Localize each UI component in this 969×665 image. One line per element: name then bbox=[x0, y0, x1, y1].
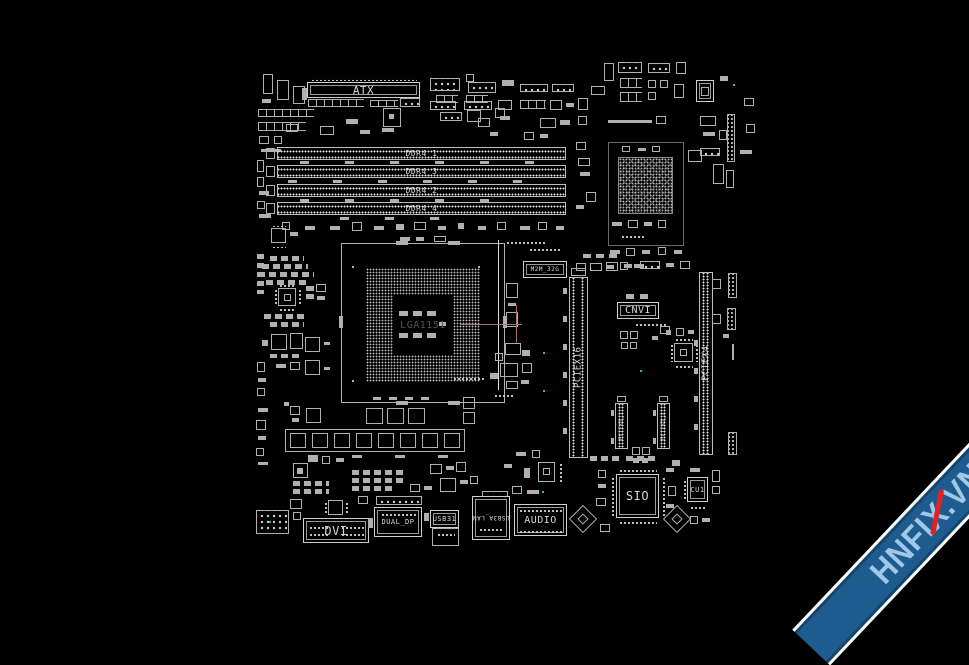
component bbox=[701, 87, 709, 96]
component bbox=[518, 508, 563, 512]
component bbox=[626, 248, 635, 256]
component bbox=[322, 456, 330, 464]
component bbox=[352, 222, 362, 231]
component bbox=[258, 436, 266, 440]
component bbox=[680, 349, 687, 356]
component bbox=[642, 447, 650, 455]
component bbox=[518, 529, 563, 533]
component bbox=[700, 148, 720, 156]
component bbox=[328, 500, 343, 515]
component bbox=[297, 288, 301, 306]
component bbox=[438, 226, 446, 230]
component bbox=[520, 100, 546, 109]
component bbox=[630, 331, 638, 339]
component bbox=[270, 256, 304, 261]
dvi-connector: DVI bbox=[303, 518, 369, 543]
component bbox=[293, 489, 329, 494]
component bbox=[308, 532, 330, 536]
component bbox=[658, 247, 666, 255]
component bbox=[620, 234, 646, 240]
component bbox=[257, 177, 264, 187]
component bbox=[527, 490, 539, 494]
component bbox=[290, 406, 300, 415]
component bbox=[358, 496, 368, 504]
component bbox=[688, 330, 694, 334]
component bbox=[609, 254, 617, 258]
mounting-hole bbox=[569, 505, 597, 533]
component bbox=[424, 513, 429, 521]
component bbox=[728, 273, 737, 298]
component bbox=[493, 393, 515, 397]
ddr4-slot-2: DDR4_2 bbox=[277, 184, 566, 197]
cnvi-label-label: CNVI bbox=[618, 303, 658, 318]
component bbox=[689, 505, 707, 509]
component bbox=[270, 354, 300, 358]
component bbox=[586, 192, 596, 202]
component bbox=[528, 247, 562, 251]
component bbox=[436, 532, 455, 536]
component bbox=[571, 268, 586, 276]
component bbox=[566, 103, 574, 107]
pciex1-1-slot: PCIEX1_1 bbox=[615, 403, 628, 449]
component bbox=[618, 468, 657, 472]
component bbox=[652, 146, 660, 152]
crosshair-h bbox=[460, 324, 522, 325]
component bbox=[352, 470, 404, 475]
component bbox=[524, 468, 530, 478]
component bbox=[502, 80, 514, 86]
component bbox=[540, 118, 556, 128]
component bbox=[256, 448, 264, 456]
component bbox=[262, 264, 308, 269]
component bbox=[258, 408, 268, 412]
component bbox=[676, 328, 684, 336]
component bbox=[290, 362, 300, 370]
component bbox=[257, 201, 265, 209]
component bbox=[506, 283, 518, 298]
component bbox=[618, 62, 642, 73]
component bbox=[258, 462, 268, 465]
component bbox=[576, 205, 584, 209]
pciex1-2-slot: PCIEX1_2 bbox=[657, 403, 670, 449]
component bbox=[452, 376, 484, 381]
component bbox=[422, 433, 438, 448]
component bbox=[259, 214, 271, 218]
component bbox=[278, 283, 296, 287]
component bbox=[271, 245, 286, 248]
component bbox=[674, 337, 693, 341]
crosshair-v bbox=[516, 305, 517, 343]
net-marker bbox=[542, 491, 544, 493]
net-marker bbox=[269, 521, 271, 523]
component bbox=[339, 316, 343, 328]
component bbox=[620, 78, 642, 88]
component bbox=[620, 262, 628, 270]
component bbox=[463, 397, 475, 409]
component bbox=[340, 525, 364, 529]
component bbox=[306, 286, 314, 291]
component bbox=[396, 224, 404, 230]
component bbox=[306, 294, 314, 299]
pciex4-slot: PCIEX4 bbox=[699, 272, 713, 455]
component bbox=[316, 284, 326, 292]
component bbox=[306, 408, 321, 423]
component bbox=[440, 478, 456, 492]
component bbox=[660, 80, 668, 88]
component bbox=[305, 360, 320, 375]
component bbox=[374, 226, 384, 230]
component bbox=[520, 226, 530, 230]
component bbox=[360, 130, 370, 134]
pch-chipset bbox=[618, 157, 673, 214]
component bbox=[578, 158, 590, 166]
component bbox=[258, 122, 306, 131]
ddr4-slot-1-label: DDR4_1 bbox=[278, 148, 565, 159]
net-marker bbox=[733, 84, 735, 86]
component bbox=[578, 116, 587, 125]
component bbox=[508, 303, 516, 306]
component bbox=[464, 101, 492, 110]
usb31-connector: USB31 bbox=[430, 510, 459, 528]
component bbox=[653, 410, 656, 446]
component bbox=[672, 460, 680, 466]
component bbox=[580, 172, 590, 176]
component bbox=[620, 92, 642, 102]
component bbox=[490, 373, 498, 379]
component bbox=[524, 132, 534, 140]
component bbox=[284, 294, 291, 301]
component bbox=[702, 518, 710, 522]
component bbox=[591, 86, 605, 95]
component bbox=[611, 410, 614, 446]
pciex1-1-slot-label: PCIEX1_1 bbox=[616, 404, 627, 448]
component bbox=[300, 161, 540, 164]
component bbox=[290, 232, 298, 236]
component bbox=[495, 108, 505, 118]
component bbox=[258, 272, 314, 277]
component bbox=[259, 136, 269, 144]
component bbox=[726, 170, 734, 188]
component bbox=[410, 484, 420, 492]
component bbox=[682, 479, 686, 501]
atx-connector-label: ATX bbox=[308, 83, 419, 97]
component bbox=[720, 76, 728, 81]
component bbox=[680, 261, 690, 269]
component bbox=[408, 408, 425, 424]
component bbox=[290, 433, 306, 448]
component bbox=[346, 119, 358, 124]
component bbox=[478, 226, 486, 230]
component bbox=[258, 109, 314, 117]
cnvi-label: CNVI bbox=[617, 302, 659, 319]
component bbox=[257, 254, 264, 294]
pciex1-2-slot-label: PCIEX1_2 bbox=[658, 404, 669, 448]
component bbox=[700, 116, 716, 126]
component bbox=[669, 343, 673, 362]
component bbox=[300, 199, 500, 202]
component bbox=[556, 226, 564, 230]
component bbox=[520, 84, 548, 92]
component bbox=[277, 80, 289, 100]
component bbox=[666, 330, 671, 335]
component bbox=[604, 63, 614, 81]
component bbox=[674, 364, 693, 368]
component bbox=[505, 343, 521, 355]
component bbox=[596, 254, 604, 258]
component bbox=[257, 388, 265, 396]
component bbox=[305, 226, 315, 230]
component bbox=[621, 342, 628, 349]
component bbox=[712, 486, 720, 494]
component bbox=[590, 263, 602, 271]
component bbox=[324, 342, 330, 345]
component bbox=[512, 486, 522, 494]
component bbox=[352, 478, 404, 483]
component bbox=[740, 150, 752, 154]
component bbox=[312, 433, 328, 448]
component bbox=[434, 236, 446, 242]
component bbox=[430, 101, 456, 110]
component bbox=[610, 476, 614, 516]
component bbox=[292, 418, 299, 422]
component bbox=[266, 185, 275, 196]
component bbox=[387, 408, 404, 424]
component bbox=[340, 217, 460, 220]
component bbox=[648, 80, 656, 88]
boardview-canvas: ATXDDR4_1DDR4_3DDR4_2DDR4_4M2M_32GLGA115… bbox=[0, 0, 969, 604]
component bbox=[373, 397, 429, 400]
cu1-chip: CU1 bbox=[687, 477, 708, 502]
component bbox=[456, 462, 466, 472]
component bbox=[310, 78, 417, 81]
sio-chip-label: SIO bbox=[617, 475, 658, 517]
component bbox=[271, 228, 286, 243]
component bbox=[271, 334, 287, 350]
component bbox=[560, 120, 570, 125]
component bbox=[522, 350, 530, 356]
component bbox=[617, 396, 626, 402]
component bbox=[744, 98, 754, 106]
component bbox=[366, 408, 383, 424]
component bbox=[606, 265, 614, 269]
component bbox=[368, 518, 373, 528]
component bbox=[470, 476, 478, 484]
ddr4-slot-4-label: DDR4_4 bbox=[278, 203, 565, 214]
component bbox=[668, 486, 676, 496]
component bbox=[293, 481, 329, 486]
component bbox=[323, 501, 327, 514]
component bbox=[666, 504, 674, 508]
m2-connector-label: M2M_32G bbox=[524, 262, 566, 277]
component bbox=[558, 462, 562, 482]
component bbox=[336, 458, 344, 462]
component bbox=[478, 266, 480, 268]
component bbox=[727, 114, 735, 162]
component bbox=[661, 476, 665, 516]
component bbox=[632, 447, 640, 455]
component bbox=[278, 307, 296, 311]
component bbox=[640, 294, 648, 299]
component bbox=[500, 363, 518, 377]
component bbox=[290, 333, 303, 349]
component bbox=[728, 432, 737, 455]
component bbox=[674, 84, 684, 98]
component bbox=[380, 512, 416, 516]
usb3-lan-connector-label: USB3A_LAN bbox=[473, 497, 509, 539]
component bbox=[266, 148, 275, 159]
component bbox=[608, 120, 652, 123]
component bbox=[395, 455, 405, 458]
cpu-socket-label-label: LGA1151 bbox=[393, 295, 453, 355]
component bbox=[340, 532, 364, 536]
component bbox=[460, 480, 468, 484]
component bbox=[622, 146, 630, 152]
ddr4-slot-3-label: DDR4_3 bbox=[278, 166, 565, 177]
component bbox=[495, 353, 503, 361]
component bbox=[540, 134, 548, 138]
component bbox=[644, 222, 652, 226]
component bbox=[732, 344, 734, 360]
component bbox=[656, 116, 666, 124]
component bbox=[506, 381, 518, 389]
component bbox=[659, 396, 668, 402]
component bbox=[490, 132, 498, 136]
component bbox=[352, 380, 354, 382]
component bbox=[648, 63, 670, 73]
component bbox=[532, 450, 540, 458]
component bbox=[432, 528, 459, 546]
pciex4-slot-label: PCIEX4 bbox=[700, 273, 712, 454]
component bbox=[271, 224, 286, 227]
component bbox=[320, 126, 334, 135]
component bbox=[598, 470, 606, 478]
component bbox=[446, 466, 454, 470]
component bbox=[416, 237, 424, 241]
component bbox=[356, 433, 372, 448]
component bbox=[463, 412, 475, 424]
component bbox=[440, 112, 462, 121]
net-marker bbox=[543, 390, 545, 392]
component bbox=[308, 525, 330, 529]
component bbox=[638, 148, 646, 151]
component bbox=[676, 62, 686, 74]
component bbox=[727, 308, 736, 330]
component bbox=[430, 464, 442, 474]
component bbox=[478, 527, 504, 531]
dvi-connector-label: DVI bbox=[304, 519, 368, 542]
component bbox=[352, 486, 392, 491]
component bbox=[690, 468, 700, 472]
component bbox=[712, 279, 721, 289]
ddr4-slot-2-label: DDR4_2 bbox=[278, 185, 565, 196]
component bbox=[630, 342, 637, 349]
component bbox=[563, 288, 567, 448]
component bbox=[344, 501, 348, 514]
component bbox=[324, 367, 330, 370]
usb31-connector-label: USB31 bbox=[431, 511, 458, 527]
component bbox=[690, 516, 698, 524]
component bbox=[257, 362, 265, 372]
component bbox=[317, 296, 325, 300]
ddr4-slot-4: DDR4_4 bbox=[277, 202, 566, 215]
component bbox=[703, 132, 715, 136]
component bbox=[612, 222, 622, 226]
component bbox=[330, 226, 340, 230]
component bbox=[497, 222, 506, 230]
component bbox=[652, 336, 658, 340]
component bbox=[648, 92, 656, 100]
usb3-lan-connector: USB3A_LAN bbox=[472, 496, 510, 540]
component bbox=[263, 74, 273, 94]
component bbox=[370, 100, 398, 107]
component bbox=[256, 420, 266, 430]
component bbox=[264, 314, 304, 319]
component bbox=[458, 223, 464, 229]
component bbox=[448, 241, 460, 245]
net-marker bbox=[640, 370, 642, 372]
component bbox=[305, 337, 320, 352]
component bbox=[552, 84, 574, 92]
component bbox=[334, 433, 350, 448]
component bbox=[378, 433, 394, 448]
m2-connector: M2M_32G bbox=[523, 261, 567, 278]
component bbox=[723, 334, 729, 338]
component bbox=[719, 130, 727, 140]
component bbox=[444, 433, 460, 448]
component bbox=[516, 452, 526, 456]
component bbox=[658, 220, 666, 228]
io-pin-block bbox=[256, 510, 289, 534]
component bbox=[620, 331, 628, 339]
component bbox=[414, 222, 426, 230]
component bbox=[468, 82, 496, 93]
component bbox=[694, 340, 698, 450]
component bbox=[626, 456, 656, 461]
component bbox=[521, 380, 529, 384]
cu1-chip-label: CU1 bbox=[688, 478, 707, 501]
component bbox=[598, 484, 606, 488]
component bbox=[273, 288, 277, 306]
component bbox=[308, 458, 318, 462]
component bbox=[626, 294, 634, 299]
component bbox=[543, 468, 550, 475]
component bbox=[688, 150, 702, 162]
component bbox=[270, 322, 304, 327]
net-marker bbox=[543, 352, 545, 354]
component bbox=[274, 136, 282, 144]
component bbox=[352, 455, 362, 458]
component bbox=[396, 241, 408, 245]
component bbox=[297, 468, 303, 474]
component bbox=[293, 512, 301, 520]
component bbox=[389, 114, 394, 119]
pciex16-slot: PCIEX16 bbox=[569, 277, 588, 458]
component bbox=[590, 456, 620, 461]
component bbox=[466, 74, 474, 82]
pciex16-slot-label: PCIEX16 bbox=[570, 278, 587, 457]
component bbox=[352, 266, 354, 268]
component bbox=[258, 378, 266, 382]
trace-line bbox=[498, 240, 499, 390]
component bbox=[382, 128, 394, 132]
component bbox=[262, 340, 268, 346]
cpu-socket-label: LGA1151 bbox=[393, 295, 453, 355]
component bbox=[600, 524, 610, 532]
component bbox=[400, 433, 416, 448]
component bbox=[538, 222, 547, 230]
component bbox=[276, 364, 286, 368]
component bbox=[505, 240, 547, 245]
